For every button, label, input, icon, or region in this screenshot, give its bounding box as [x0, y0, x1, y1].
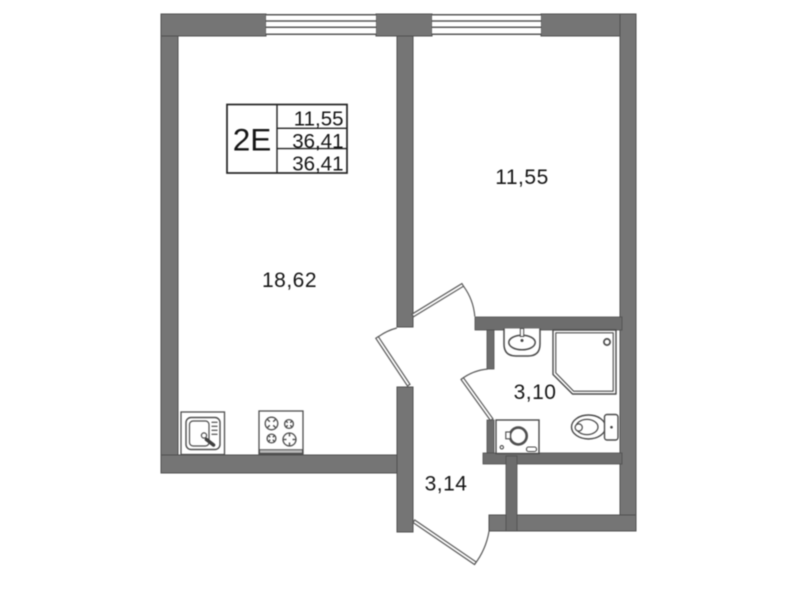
svg-text:3,10: 3,10 [514, 381, 557, 404]
svg-text:2E: 2E [233, 122, 272, 158]
svg-text:36,41: 36,41 [292, 152, 343, 175]
svg-text:11,55: 11,55 [495, 166, 549, 189]
svg-text:18,62: 18,62 [262, 269, 317, 292]
svg-text:36,41: 36,41 [292, 130, 343, 153]
svg-text:3,14: 3,14 [425, 473, 468, 496]
svg-text:11,55: 11,55 [294, 108, 344, 131]
